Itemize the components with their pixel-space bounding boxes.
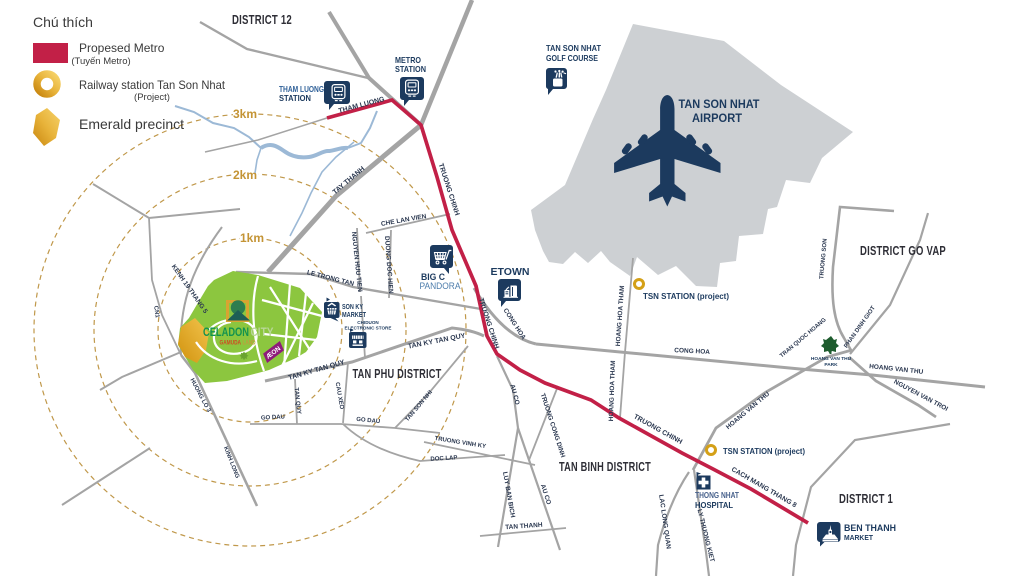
svg-text:ELECTRONIC STORE: ELECTRONIC STORE — [345, 326, 392, 331]
svg-text:HOSPITAL: HOSPITAL — [695, 500, 733, 510]
svg-text:PANDORA: PANDORA — [420, 281, 462, 292]
svg-text:HOANG VAN THU: HOANG VAN THU — [811, 356, 852, 362]
svg-text:CELADON: CELADON — [203, 325, 249, 339]
svg-text:1km: 1km — [240, 231, 264, 245]
svg-text:STATION: STATION — [279, 93, 311, 103]
svg-text:TSN STATION (project): TSN STATION (project) — [643, 292, 729, 301]
svg-text:(Project): (Project) — [134, 92, 170, 103]
svg-text:TAN BINH DISTRICT: TAN BINH DISTRICT — [559, 460, 651, 474]
svg-text:STATION: STATION — [395, 64, 426, 74]
svg-text:THONG NHAT: THONG NHAT — [695, 491, 739, 500]
svg-text:TAN PHU DISTRICT: TAN PHU DISTRICT — [353, 367, 442, 381]
svg-text:(Tuyến Metro): (Tuyến Metro) — [71, 56, 130, 67]
svg-text:GO DAU: GO DAU — [261, 414, 285, 421]
svg-text:MARKET: MARKET — [844, 533, 873, 542]
svg-text:AIRPORT: AIRPORT — [692, 113, 742, 125]
svg-text:GOLF COURSE: GOLF COURSE — [546, 54, 599, 63]
svg-text:TSN STATION (project): TSN STATION (project) — [723, 447, 805, 456]
svg-text:PARK: PARK — [824, 362, 838, 368]
svg-text:GAMUDA: GAMUDA — [220, 340, 242, 347]
svg-text:Railway station Tan Son Nhat: Railway station Tan Son Nhat — [79, 78, 226, 92]
svg-text:LAND: LAND — [243, 340, 256, 347]
svg-text:DISTRICT GO VAP: DISTRICT GO VAP — [860, 244, 946, 258]
svg-text:2km: 2km — [233, 168, 257, 182]
svg-text:DISTRICT 1: DISTRICT 1 — [839, 492, 893, 506]
svg-text:CHIDUON: CHIDUON — [357, 320, 379, 325]
svg-text:DISTRICT 12: DISTRICT 12 — [232, 12, 292, 27]
svg-text:Chú thích: Chú thích — [33, 14, 93, 30]
svg-text:3km: 3km — [233, 107, 257, 121]
svg-text:TAN SON NHAT: TAN SON NHAT — [679, 99, 760, 111]
svg-text:ETOWN: ETOWN — [491, 266, 530, 278]
svg-text:Propesed Metro: Propesed Metro — [79, 41, 165, 55]
svg-text:Emerald precinct: Emerald precinct — [79, 116, 184, 132]
svg-text:TAN SON NHAT: TAN SON NHAT — [546, 44, 601, 53]
svg-text:CITY: CITY — [251, 325, 274, 339]
svg-text:MARKET: MARKET — [342, 310, 366, 319]
